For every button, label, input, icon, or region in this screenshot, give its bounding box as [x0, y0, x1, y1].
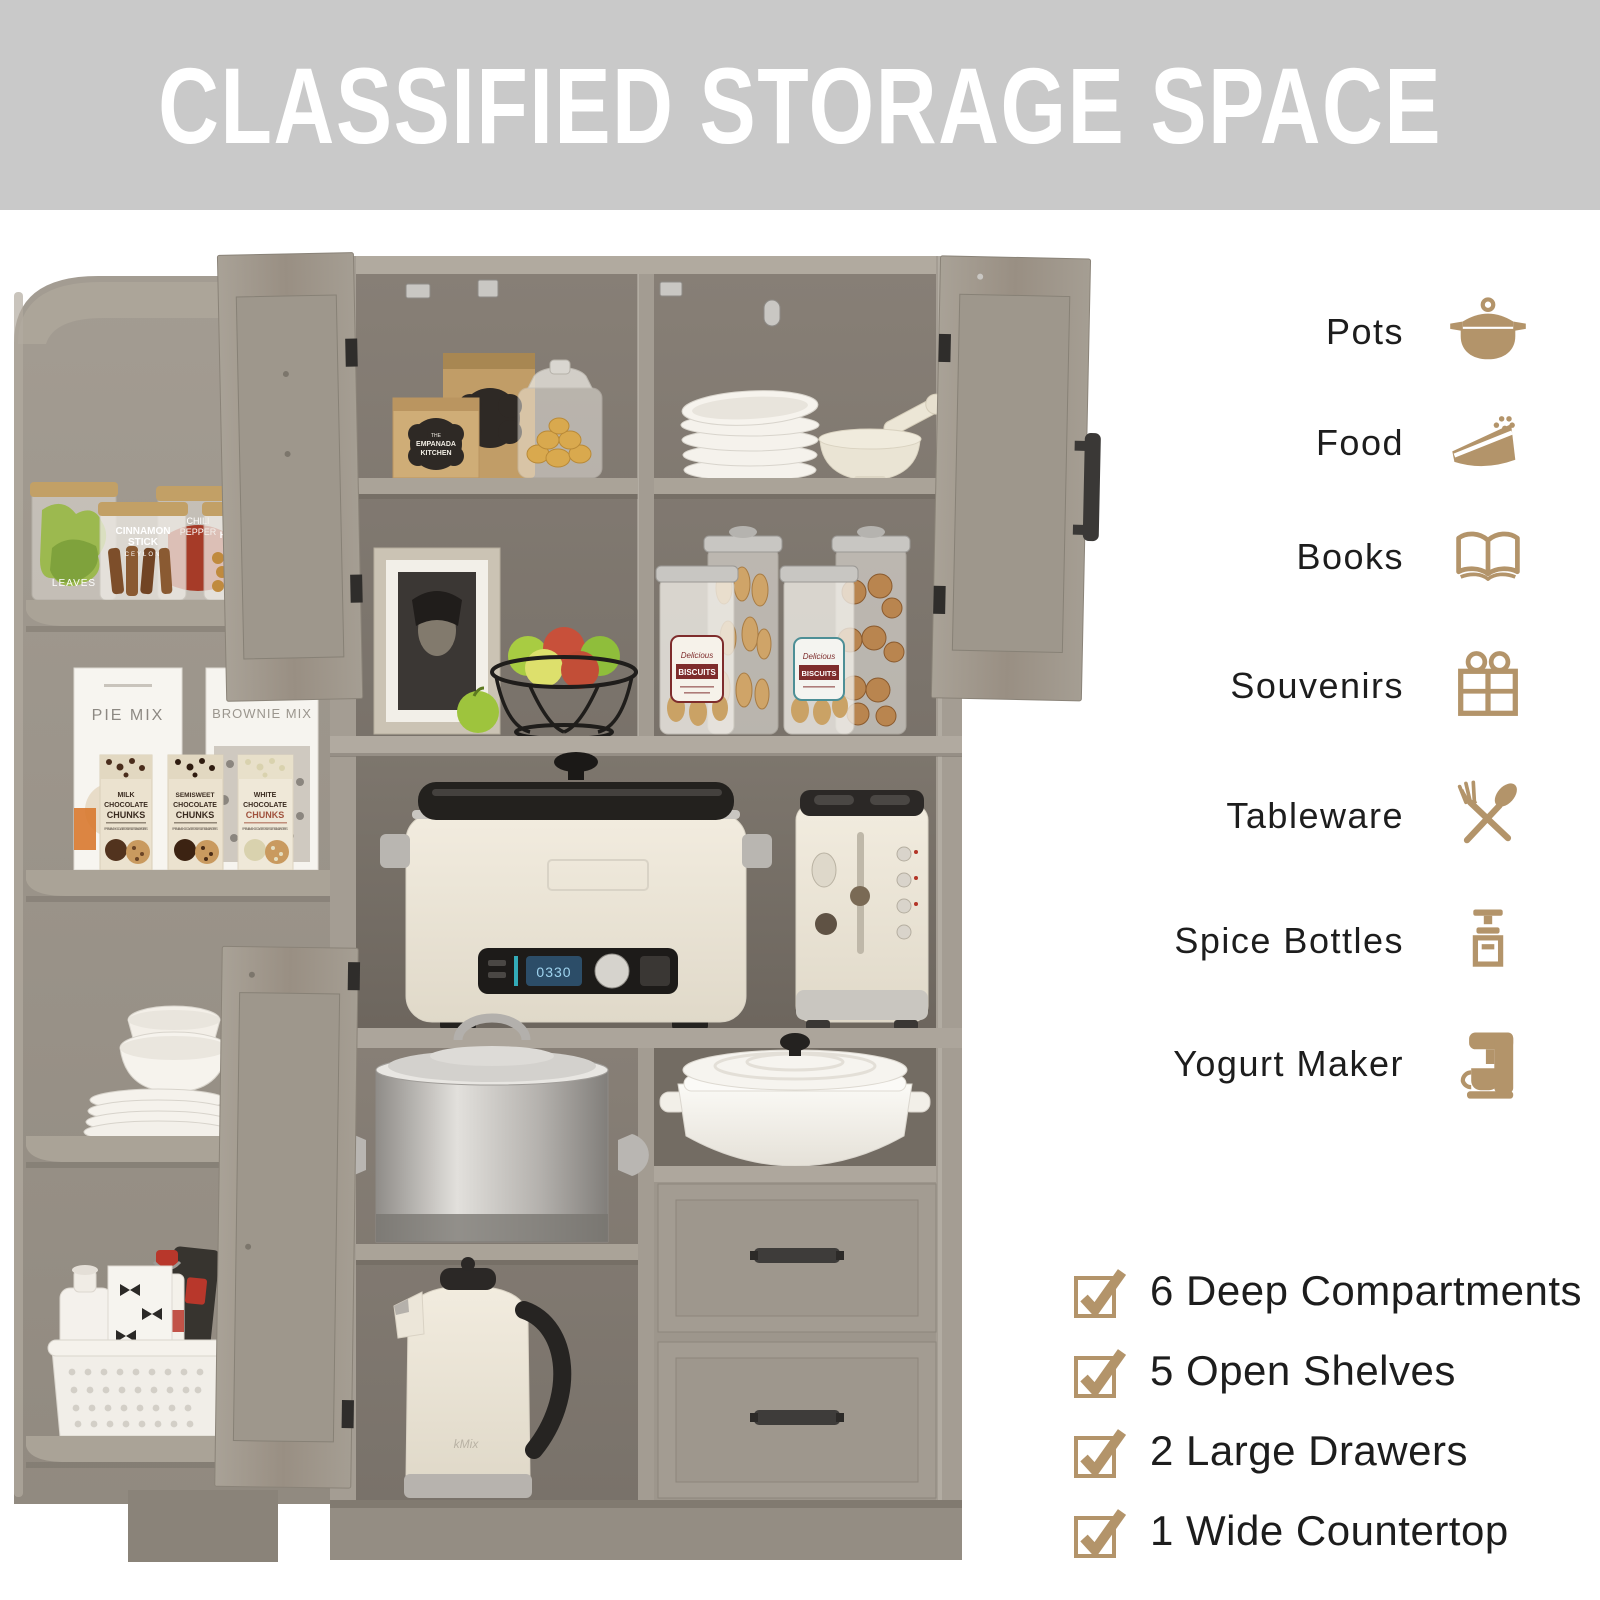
jar-label-cinnamon-2: STICK: [128, 537, 159, 548]
chunk-box-2-l2: CHOCOLATE: [173, 802, 217, 809]
chunk-box-2-l1: SEMISWEET: [175, 792, 214, 799]
chunk-box-3-l2: CHOCOLATE: [243, 802, 287, 809]
biscuit-label-2: BISCUITS: [801, 669, 836, 678]
bag-brand-kitchen: KITCHEN: [420, 450, 451, 457]
drawer-unit-top: [654, 1166, 936, 1182]
category-row-pots: Pots: [1100, 287, 1530, 377]
lower-left-shelf: [356, 1244, 638, 1260]
drawer-2: [658, 1342, 936, 1498]
white-chocolate-box: WHITE CHOCOLATE CHUNKS PREMIUM CHOCOLATE…: [238, 755, 293, 870]
category-label: Food: [1316, 422, 1404, 464]
door-bottom-left: [215, 946, 361, 1488]
feature-row-compartments: 6 Deep Compartments: [1072, 1256, 1582, 1326]
chunk-box-3-l3: CHUNKS: [246, 810, 285, 820]
cooker-handle-left: [380, 834, 410, 868]
middle-shelf-edge: [330, 1028, 962, 1048]
toaster-lever-knob: [850, 886, 870, 906]
product-photo: LEAVES CHILI PEPPER CINNAMON STICK CEYLO…: [8, 248, 1144, 1570]
biscuit-script-2: Delicious: [803, 652, 835, 661]
feature-label: 6 Deep Compartments: [1150, 1267, 1582, 1315]
biscuit-label-1: BISCUITS: [678, 668, 716, 677]
chunk-box-2-tagline: PREMIUM CHOCOLATE FOR DESSERTS AND PASTR…: [172, 826, 218, 831]
corner-unit-pedestal: [128, 1490, 278, 1562]
open-book-icon: [1446, 515, 1530, 599]
checkbox-icon: [1072, 1420, 1128, 1482]
biscuit-jar-front-2: Delicious BISCUITS: [780, 566, 858, 734]
category-row-yogurt-maker: Yogurt Maker: [1100, 1019, 1530, 1109]
cooker-display: 0330: [536, 964, 571, 980]
category-label: Tableware: [1226, 795, 1404, 837]
cooker-knob: [595, 954, 629, 988]
cooker-lid: [418, 782, 734, 820]
jar-cinnamon: CINNAMON STICK CEYLON: [98, 502, 188, 600]
category-label: Yogurt Maker: [1173, 1043, 1404, 1085]
jar-label-leaves: LEAVES: [52, 578, 96, 589]
pie-mix-label: PIE MIX: [92, 707, 165, 724]
plate-stack: [84, 1089, 232, 1143]
fork-spoon-icon: [1446, 774, 1530, 858]
white-bowls: [120, 1006, 228, 1092]
banner-title: CLASSIFIED STORAGE SPACE: [158, 43, 1442, 168]
bowl-stack: [681, 387, 819, 481]
slow-cooker: 0330: [380, 752, 772, 1030]
lower-divider: [638, 1048, 654, 1500]
drawer-1: [658, 1184, 936, 1332]
upper-left-shelf: [356, 478, 638, 494]
checkbox-icon: [1072, 1340, 1128, 1402]
category-label: Souvenirs: [1230, 665, 1404, 707]
main-cabinet: THE EMPANADA KITCHEN: [330, 256, 962, 1560]
bag-brand-empanada: EMPANADA: [416, 441, 456, 448]
toaster-knob: [815, 913, 837, 935]
semisweet-chocolate-box: SEMISWEET CHOCOLATE CHUNKS PREMIUM CHOCO…: [168, 755, 223, 870]
spice-grinder-icon: [1446, 899, 1530, 983]
feature-label: 2 Large Drawers: [1150, 1427, 1468, 1475]
gift-box-icon: [1446, 644, 1530, 728]
bag-brand-the: THE: [431, 433, 442, 439]
biscuit-jar-front-1: Delicious BISCUITS: [656, 566, 738, 734]
cooker-handle-right: [742, 834, 772, 868]
category-label: Books: [1296, 536, 1404, 578]
biscuit-script-1: Delicious: [681, 651, 713, 660]
category-row-tableware: Tableware: [1100, 771, 1530, 861]
chunk-box-1-tagline: PREMIUM CHOCOLATE FOR DESSERTS AND PASTR…: [104, 826, 148, 831]
feature-row-drawers: 2 Large Drawers: [1072, 1416, 1468, 1486]
toaster-emblem: [812, 853, 836, 887]
kraft-box: THE EMPANADA KITCHEN: [393, 398, 479, 478]
page: { "header": { "title": "CLASSIFIED STORA…: [0, 0, 1600, 1600]
corner-shelf-2: [26, 870, 330, 896]
brownie-mix-label: BROWNIE MIX: [212, 706, 312, 721]
chunk-box-1-l3: CHUNKS: [107, 810, 146, 820]
yogurt-maker-icon: [1446, 1022, 1530, 1106]
kettle-lid: [440, 1268, 496, 1290]
chunk-box-2-l3: CHUNKS: [176, 810, 215, 820]
chunk-box-3-tagline: PREMIUM CHOCOLATE FOR DESSERTS AND PASTR…: [242, 826, 288, 831]
chunk-box-1-l1: MILK: [117, 792, 134, 799]
cake-slice-icon: [1446, 401, 1530, 485]
jar-label-cinnamon-3: CEYLON: [125, 552, 162, 558]
dutch-oven-knob: [780, 1033, 810, 1051]
chunk-box-3-l1: WHITE: [254, 792, 277, 799]
drawer-2-handle: [754, 1410, 840, 1425]
upper-right-shelf: [654, 478, 936, 494]
category-row-books: Books: [1100, 512, 1530, 602]
checkbox-icon: [1072, 1500, 1128, 1562]
feature-row-shelves: 5 Open Shelves: [1072, 1336, 1456, 1406]
door-top-right: [931, 256, 1104, 701]
storage-basket: [48, 1340, 228, 1436]
chunk-box-1-l2: CHOCOLATE: [104, 802, 148, 809]
upper-divider: [638, 274, 654, 736]
drawer-1-handle: [754, 1248, 840, 1263]
feature-label: 1 Wide Countertop: [1150, 1507, 1509, 1555]
category-row-food: Food: [1100, 398, 1530, 488]
category-row-souvenirs: Souvenirs: [1100, 641, 1530, 731]
door-top-left: [217, 253, 364, 702]
jar-label-cinnamon-1: CINNAMON: [116, 526, 171, 537]
kick-base: [330, 1500, 962, 1560]
feature-row-countertop: 1 Wide Countertop: [1072, 1496, 1509, 1566]
pot-icon: [1446, 290, 1530, 374]
kettle-brand: kMix: [454, 1437, 480, 1451]
cabinet-scene: LEAVES CHILI PEPPER CINNAMON STICK CEYLO…: [8, 248, 1144, 1570]
feature-label: 5 Open Shelves: [1150, 1347, 1456, 1395]
category-label: Pots: [1326, 311, 1404, 353]
category-row-spice-bottles: Spice Bottles: [1100, 896, 1530, 986]
checkbox-icon: [1072, 1260, 1128, 1322]
category-label: Spice Bottles: [1174, 920, 1404, 962]
banner: CLASSIFIED STORAGE SPACE: [0, 0, 1600, 210]
toaster: [796, 790, 928, 1030]
milk-chocolate-box: MILK CHOCOLATE CHUNKS PREMIUM CHOCOLATE …: [100, 755, 152, 870]
